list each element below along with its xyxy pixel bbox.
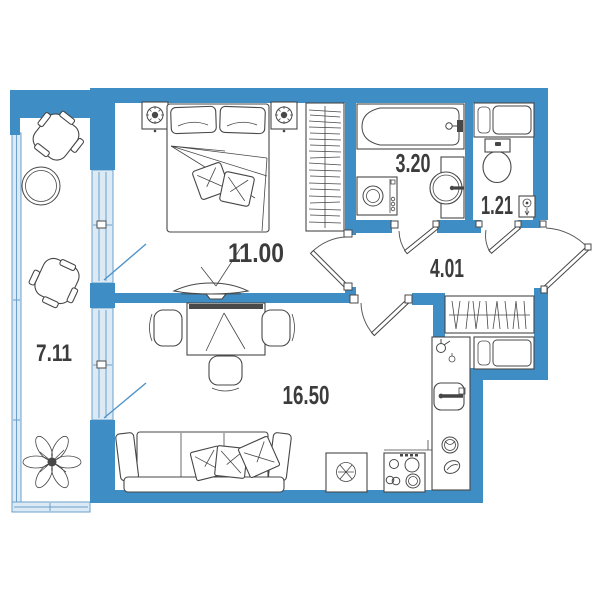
shoe-cabinet-icon xyxy=(474,337,534,369)
room-label-bedroom: 11.00 xyxy=(228,238,284,268)
stove-burners-icon xyxy=(384,453,425,492)
floor-plan-canvas: 7.11 11.00 3.20 1.21 4.01 16.50 xyxy=(0,0,600,600)
chair-icon xyxy=(150,310,183,346)
bed-icon xyxy=(167,104,269,232)
room-label-balcony: 7.11 xyxy=(36,340,72,367)
fridge-snowflake-icon xyxy=(326,453,367,492)
wardrobe-hanging-clothes-icon xyxy=(445,296,534,333)
room-label-hallway: 4.01 xyxy=(430,253,464,283)
bathtub-icon xyxy=(357,104,464,149)
toilet-icon xyxy=(483,139,511,183)
dining-table-icon xyxy=(187,303,265,355)
kitchen-sink-icon xyxy=(434,383,465,410)
nightstand-lamp-icon xyxy=(271,102,297,132)
sofa-icon xyxy=(115,432,291,492)
washing-machine-icon xyxy=(357,177,397,215)
chair-icon xyxy=(262,310,295,346)
room-label-living-kitchen: 16.50 xyxy=(283,380,330,410)
wardrobe-hanging-clothes-icon xyxy=(306,103,344,231)
room-label-bathroom: 3.20 xyxy=(396,148,431,178)
room-label-wc: 1.21 xyxy=(481,190,513,220)
nightstand-lamp-icon xyxy=(142,102,168,132)
drain-icon xyxy=(519,196,535,217)
floor-plan: 7.11 11.00 3.20 1.21 4.01 16.50 xyxy=(0,0,600,600)
kitchen-counter xyxy=(432,337,470,490)
wc-basin-cabinet xyxy=(474,103,534,137)
